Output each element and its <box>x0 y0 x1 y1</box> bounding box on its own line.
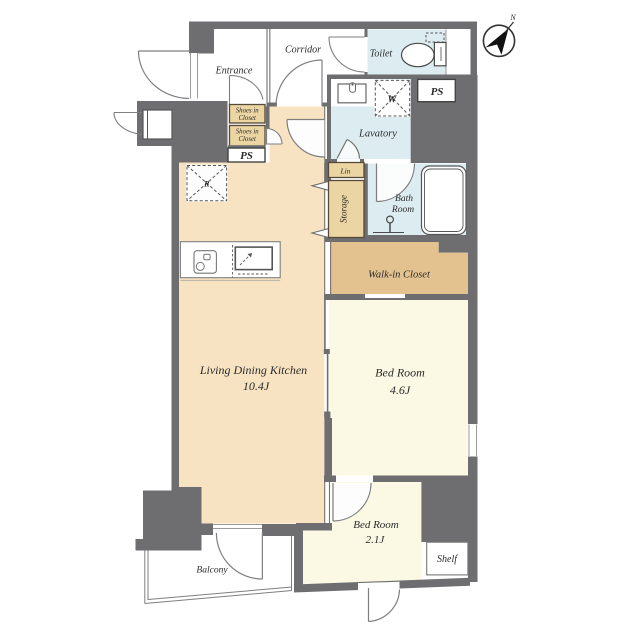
svg-text:Closet: Closet <box>239 115 257 122</box>
svg-text:N: N <box>509 13 516 22</box>
svg-text:Storage: Storage <box>339 195 349 223</box>
svg-text:W: W <box>388 95 398 106</box>
svg-text:Balcony: Balcony <box>196 566 228 576</box>
svg-text:Closet: Closet <box>239 136 257 143</box>
svg-text:Bed Room: Bed Room <box>375 366 425 380</box>
svg-text:10.4J: 10.4J <box>243 379 270 393</box>
svg-text:Bed Room: Bed Room <box>353 519 399 531</box>
svg-text:Corridor: Corridor <box>285 45 321 56</box>
svg-text:Shoes in: Shoes in <box>236 129 259 136</box>
svg-text:Shoes in: Shoes in <box>236 108 259 115</box>
svg-text:4.6J: 4.6J <box>390 383 411 397</box>
svg-text:Bath: Bath <box>395 194 413 204</box>
svg-text:Shelf: Shelf <box>437 554 458 565</box>
svg-text:2.1J: 2.1J <box>366 534 386 546</box>
svg-text:R: R <box>203 180 210 189</box>
svg-text:Living Dining Kitchen: Living Dining Kitchen <box>199 363 307 377</box>
svg-text:Entrance: Entrance <box>215 66 253 77</box>
svg-text:Walk-in Closet: Walk-in Closet <box>368 270 431 281</box>
svg-text:Lavatory: Lavatory <box>358 129 397 140</box>
svg-text:PS: PS <box>431 86 444 98</box>
svg-text:Toilet: Toilet <box>370 49 393 60</box>
svg-text:PS: PS <box>240 150 253 162</box>
svg-text:Room: Room <box>391 205 414 215</box>
svg-text:Lin: Lin <box>339 167 350 176</box>
